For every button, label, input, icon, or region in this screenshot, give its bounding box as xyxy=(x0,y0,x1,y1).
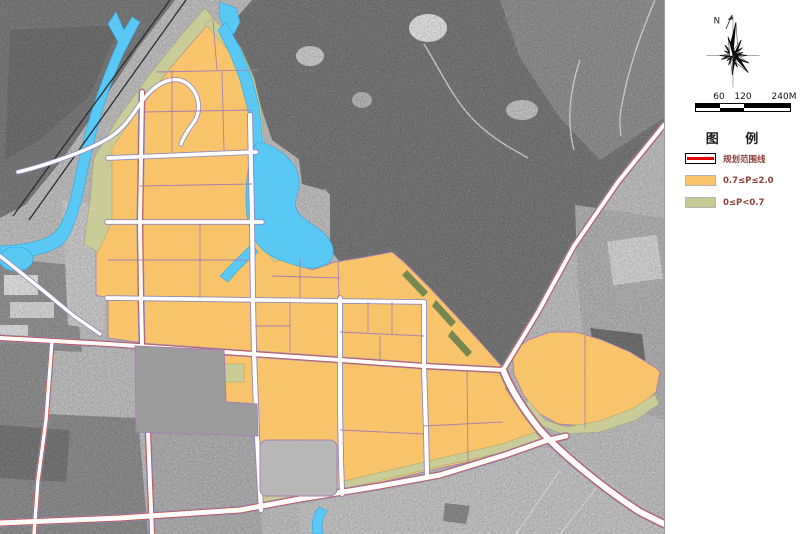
scale-tick-60: 60 xyxy=(713,92,724,102)
compass-rose: N xyxy=(665,6,800,98)
scale-bar: 60 120 240M xyxy=(695,92,795,122)
plan-map-canvas[interactable] xyxy=(0,0,664,534)
legend-item-boundary: 规划范围线 xyxy=(685,152,797,165)
boundary-line-swatch xyxy=(685,153,716,164)
legend-item-zone-low: 0≤P<0.7 xyxy=(685,196,797,209)
compass-petals xyxy=(720,22,749,75)
legend-label: 规划范围线 xyxy=(723,153,766,165)
north-label: N xyxy=(714,17,721,27)
zone-high-swatch xyxy=(685,175,716,186)
zone-low-swatch xyxy=(685,197,716,208)
planning-map-page: N 60 120 240M 图 例 xyxy=(0,0,800,534)
legend-item-zone-high: 0.7≤P≤2.0 xyxy=(685,174,797,187)
legend-title: 图 例 xyxy=(665,128,800,147)
scale-tick-120: 120 xyxy=(734,92,751,102)
north-arrow-icon xyxy=(726,15,733,29)
scale-tick-240: 240M xyxy=(772,92,797,102)
legend-label: 0≤P<0.7 xyxy=(723,198,764,208)
legend-label: 0.7≤P≤2.0 xyxy=(723,176,774,186)
legend-items: 规划范围线 0.7≤P≤2.0 0≤P<0.7 xyxy=(685,152,797,218)
scale-bar-graphic xyxy=(695,103,791,112)
legend-panel: N 60 120 240M 图 例 xyxy=(664,0,800,534)
